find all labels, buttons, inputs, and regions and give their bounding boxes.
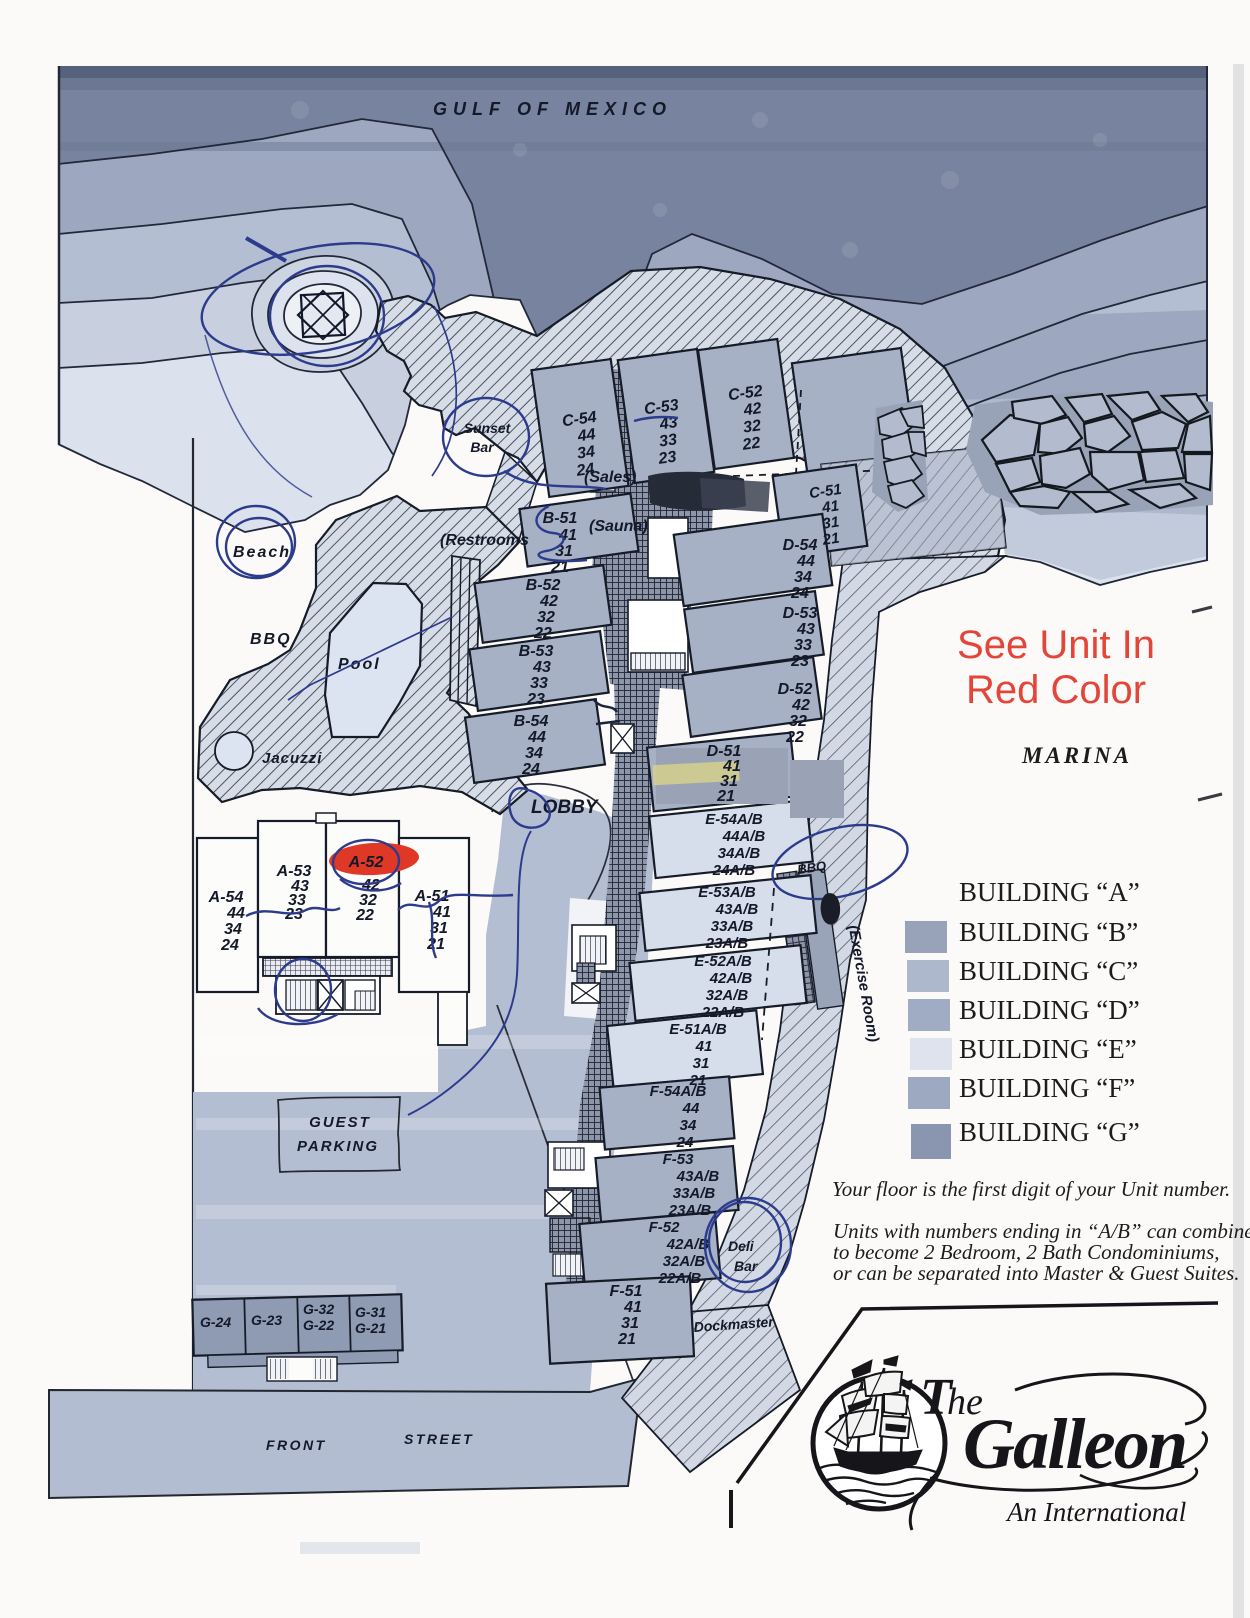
svg-text:24A/B: 24A/B bbox=[712, 862, 756, 879]
svg-text:23: 23 bbox=[656, 449, 677, 468]
svg-text:44: 44 bbox=[682, 1100, 700, 1117]
svg-text:LOBBY: LOBBY bbox=[531, 797, 600, 818]
svg-text:BBQ: BBQ bbox=[250, 631, 292, 648]
svg-text:Bar: Bar bbox=[734, 1258, 759, 1274]
svg-text:44: 44 bbox=[576, 426, 597, 445]
svg-text:43: 43 bbox=[532, 659, 551, 676]
svg-text:G-32: G-32 bbox=[303, 1301, 334, 1317]
svg-text:See Unit In: See Unit In bbox=[957, 623, 1155, 667]
svg-text:44: 44 bbox=[226, 905, 245, 922]
svg-text:PARKING: PARKING bbox=[297, 1138, 379, 1155]
svg-text:23: 23 bbox=[790, 653, 809, 670]
svg-text:or can be separated into Maste: or can be separated into Master & Guest … bbox=[833, 1261, 1240, 1285]
svg-text:31: 31 bbox=[693, 1055, 710, 1072]
svg-text:G-22: G-22 bbox=[303, 1317, 334, 1333]
svg-text:43A/B: 43A/B bbox=[676, 1168, 720, 1185]
svg-text:34: 34 bbox=[576, 443, 596, 462]
svg-text:23A/B: 23A/B bbox=[705, 935, 749, 952]
svg-text:Galleon: Galleon bbox=[963, 1404, 1188, 1484]
svg-text:22A/B: 22A/B bbox=[701, 1004, 745, 1021]
svg-text:32A/B: 32A/B bbox=[706, 987, 749, 1004]
svg-text:D-53: D-53 bbox=[783, 605, 818, 622]
svg-text:32: 32 bbox=[537, 609, 555, 626]
svg-text:F-53: F-53 bbox=[663, 1151, 695, 1168]
svg-text:24: 24 bbox=[521, 761, 540, 778]
svg-text:G-21: G-21 bbox=[355, 1320, 386, 1336]
svg-text:42A/B: 42A/B bbox=[666, 1236, 710, 1253]
svg-text:D-54: D-54 bbox=[783, 537, 818, 554]
svg-text:41: 41 bbox=[623, 1299, 642, 1316]
svg-text:Deli: Deli bbox=[728, 1238, 755, 1254]
svg-text:22A/B: 22A/B bbox=[658, 1270, 702, 1287]
svg-text:44: 44 bbox=[796, 553, 815, 570]
svg-text:BUILDING “F”: BUILDING “F” bbox=[959, 1073, 1135, 1103]
svg-text:33: 33 bbox=[658, 431, 678, 450]
svg-text:E-53A/B: E-53A/B bbox=[698, 884, 756, 901]
svg-text:Pool: Pool bbox=[338, 656, 381, 673]
svg-text:G-23: G-23 bbox=[251, 1312, 282, 1328]
svg-text:41: 41 bbox=[432, 904, 451, 921]
svg-text:43A/B: 43A/B bbox=[715, 901, 759, 918]
svg-text:STREET: STREET bbox=[404, 1431, 474, 1447]
svg-text:34A/B: 34A/B bbox=[718, 845, 761, 862]
svg-text:BUILDING “E”: BUILDING “E” bbox=[959, 1034, 1137, 1064]
svg-text:24: 24 bbox=[676, 1134, 694, 1151]
svg-text:42: 42 bbox=[742, 400, 763, 419]
svg-text:B-53: B-53 bbox=[519, 643, 554, 660]
svg-text:34: 34 bbox=[224, 921, 242, 938]
svg-text:24: 24 bbox=[790, 585, 809, 602]
svg-text:BUILDING “A”: BUILDING “A” bbox=[959, 877, 1140, 907]
svg-text:Red Color: Red Color bbox=[966, 668, 1146, 712]
svg-text:GULF OF MEXICO: GULF OF MEXICO bbox=[433, 99, 672, 119]
svg-text:Bar: Bar bbox=[470, 439, 495, 455]
svg-text:42: 42 bbox=[539, 593, 558, 610]
svg-text:23: 23 bbox=[526, 691, 545, 708]
svg-text:F-52: F-52 bbox=[649, 1219, 681, 1236]
svg-text:33A/B: 33A/B bbox=[711, 918, 754, 935]
svg-text:34: 34 bbox=[794, 569, 812, 586]
svg-text:42: 42 bbox=[791, 697, 810, 714]
svg-text:(Sauna): (Sauna) bbox=[589, 518, 648, 535]
svg-text:32A/B: 32A/B bbox=[663, 1253, 706, 1270]
svg-text:BUILDING “D”: BUILDING “D” bbox=[959, 995, 1140, 1025]
svg-text:B-51: B-51 bbox=[543, 510, 578, 527]
svg-text:22: 22 bbox=[533, 625, 552, 642]
svg-text:41: 41 bbox=[695, 1038, 713, 1055]
svg-text:F-51: F-51 bbox=[610, 1283, 643, 1300]
svg-text:E-52A/B: E-52A/B bbox=[694, 953, 752, 970]
svg-text:G-24: G-24 bbox=[200, 1314, 231, 1330]
svg-text:33A/B: 33A/B bbox=[673, 1185, 716, 1202]
svg-text:21: 21 bbox=[716, 788, 735, 805]
svg-text:B-54: B-54 bbox=[514, 713, 549, 730]
svg-text:Beach: Beach bbox=[233, 544, 291, 561]
svg-text:24: 24 bbox=[220, 937, 239, 954]
svg-text:Your floor is the first digit: Your floor is the first digit of your Un… bbox=[832, 1177, 1230, 1201]
svg-text:34: 34 bbox=[525, 745, 543, 762]
svg-text:33: 33 bbox=[794, 637, 812, 654]
svg-text:E-54A/B: E-54A/B bbox=[705, 811, 763, 828]
svg-text:(Sales): (Sales) bbox=[584, 469, 636, 486]
svg-text:44: 44 bbox=[527, 729, 546, 746]
svg-text:GUEST: GUEST bbox=[309, 1114, 371, 1131]
svg-text:F-54A/B: F-54A/B bbox=[650, 1083, 707, 1100]
svg-text:21: 21 bbox=[426, 936, 445, 953]
svg-text:An International: An International bbox=[1005, 1497, 1186, 1527]
svg-text:MARINA: MARINA bbox=[1021, 743, 1132, 768]
svg-text:D-52: D-52 bbox=[778, 681, 813, 698]
svg-text:31: 31 bbox=[621, 1315, 639, 1332]
svg-text:21: 21 bbox=[617, 1331, 636, 1348]
svg-text:Sunset: Sunset bbox=[464, 420, 512, 436]
svg-text:BUILDING “B”: BUILDING “B” bbox=[959, 917, 1138, 947]
svg-text:22: 22 bbox=[785, 729, 804, 746]
svg-text:21: 21 bbox=[821, 530, 841, 549]
svg-text:A-52: A-52 bbox=[348, 854, 384, 871]
svg-text:G-31: G-31 bbox=[355, 1304, 386, 1320]
svg-text:BUILDING “G”: BUILDING “G” bbox=[959, 1117, 1140, 1147]
svg-text:BUILDING “C”: BUILDING “C” bbox=[959, 956, 1138, 986]
svg-text:34: 34 bbox=[680, 1117, 697, 1134]
svg-text:Jacuzzi: Jacuzzi bbox=[262, 750, 322, 767]
svg-text:E-51A/B: E-51A/B bbox=[669, 1021, 727, 1038]
svg-text:22: 22 bbox=[355, 907, 374, 924]
svg-text:43: 43 bbox=[796, 621, 815, 638]
svg-text:(Restrooms: (Restrooms bbox=[440, 532, 529, 549]
svg-text:FRONT: FRONT bbox=[266, 1437, 327, 1453]
svg-text:22: 22 bbox=[740, 435, 761, 454]
svg-text:42A/B: 42A/B bbox=[709, 970, 753, 987]
svg-text:A-54: A-54 bbox=[208, 889, 244, 906]
svg-text:32: 32 bbox=[789, 713, 807, 730]
svg-text:33: 33 bbox=[530, 675, 548, 692]
svg-text:44A/B: 44A/B bbox=[722, 828, 766, 845]
svg-text:B-52: B-52 bbox=[526, 577, 561, 594]
svg-text:32: 32 bbox=[742, 417, 762, 436]
svg-text:23A/B: 23A/B bbox=[668, 1202, 712, 1219]
